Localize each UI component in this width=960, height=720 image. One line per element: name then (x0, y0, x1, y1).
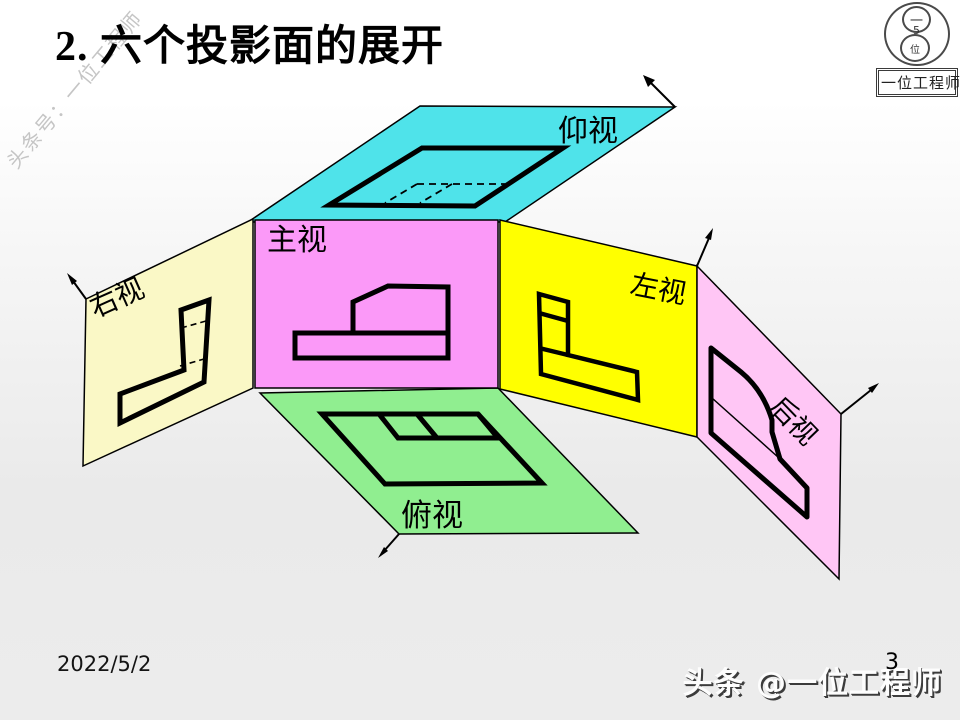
arrow-shaft (73, 281, 86, 299)
brand-logo: 一 5 位 一位工程师 (876, 2, 958, 97)
logo-name-box: 一位工程师 (876, 68, 958, 97)
arrow-shaft (697, 238, 709, 266)
page-number: 3 (885, 650, 899, 675)
page-title: 2. 六个投影面的展开 (55, 12, 444, 73)
plane-right-view (83, 219, 253, 466)
projection-unfold-diagram: 仰视 主视 右视 左视 俯视 后视 (0, 0, 960, 720)
view-label-top: 俯视 (401, 498, 463, 534)
unfold-arrow-left-view (697, 228, 713, 266)
plane-left-view (500, 220, 697, 437)
logo-circle-icon: 一 5 位 (884, 2, 950, 66)
plane-rear-view (697, 266, 841, 579)
view-label-bottom: 仰视 (558, 114, 618, 149)
view-label-front: 主视 (267, 223, 327, 258)
unfold-arrow-rear-view (841, 383, 879, 414)
unfold-arrow-bottom-view (643, 75, 675, 107)
arrow-shaft (384, 534, 399, 551)
watermark-bottom-right: 头条 @一位工程师 (683, 658, 942, 702)
slide-root: 头条号：一位工程师 2. 六个投影面的展开 一 5 位 一位工程师 (0, 0, 960, 720)
unfold-arrow-right-view (67, 273, 86, 299)
arrow-shaft (841, 390, 871, 414)
arrowhead-icon (705, 228, 713, 240)
unfold-arrow-top-view (378, 534, 399, 558)
logo-monogram-bottom: 位 (900, 34, 930, 62)
footer-date: 2022/5/2 (57, 652, 151, 676)
arrow-shaft (649, 81, 675, 107)
